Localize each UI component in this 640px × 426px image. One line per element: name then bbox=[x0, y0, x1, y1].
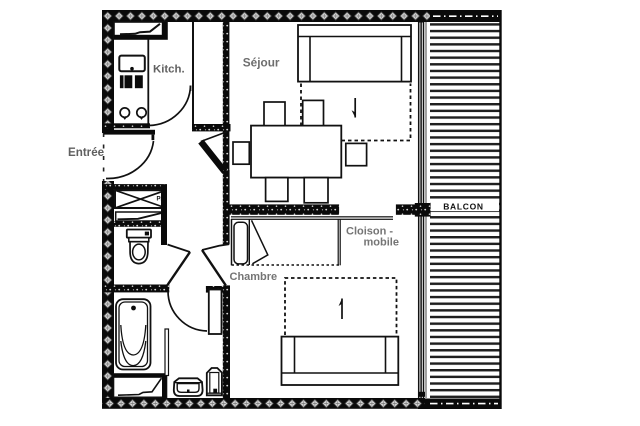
svg-text:BALCON: BALCON bbox=[443, 201, 484, 211]
svg-text:Kitch.: Kitch. bbox=[153, 63, 185, 75]
svg-text:Chambre: Chambre bbox=[230, 271, 278, 283]
svg-text:mobile: mobile bbox=[364, 237, 399, 249]
svg-text:Entrée: Entrée bbox=[68, 146, 105, 159]
svg-text:Séjour: Séjour bbox=[243, 55, 280, 69]
